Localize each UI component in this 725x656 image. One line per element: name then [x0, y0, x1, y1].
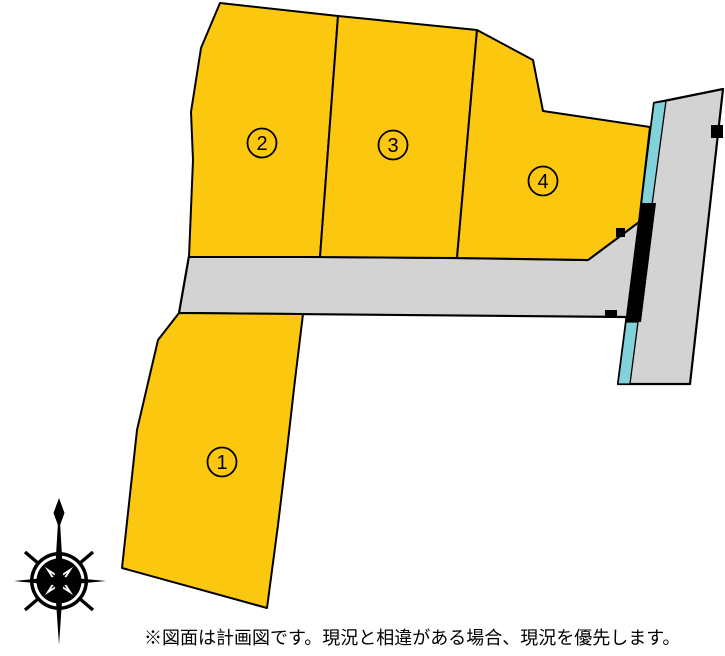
plot-3-number: 3 [387, 135, 398, 157]
compass-rose-icon [14, 498, 106, 645]
compass-needle-east-west [14, 577, 106, 586]
boundary-marker [605, 310, 617, 318]
plot-4-area [457, 30, 650, 260]
site-plan-drawing: 1 2 3 4 [0, 0, 725, 656]
boundary-marker [616, 228, 625, 237]
plot-2-number: 2 [256, 133, 267, 155]
boundary-marker [711, 125, 723, 138]
compass-spearhead [54, 498, 65, 528]
site-plan: 1 2 3 4 ※図面は計画図です。現況と相違がある場合、現況を優先 [0, 0, 725, 656]
plot-2-area [189, 3, 338, 257]
plot-4-number: 4 [537, 171, 548, 193]
plot-1-number: 1 [216, 452, 227, 474]
disclaimer-text: ※図面は計画図です。現況と相違がある場合、現況を優先します。 [144, 627, 680, 649]
plot-1-area [122, 313, 303, 608]
